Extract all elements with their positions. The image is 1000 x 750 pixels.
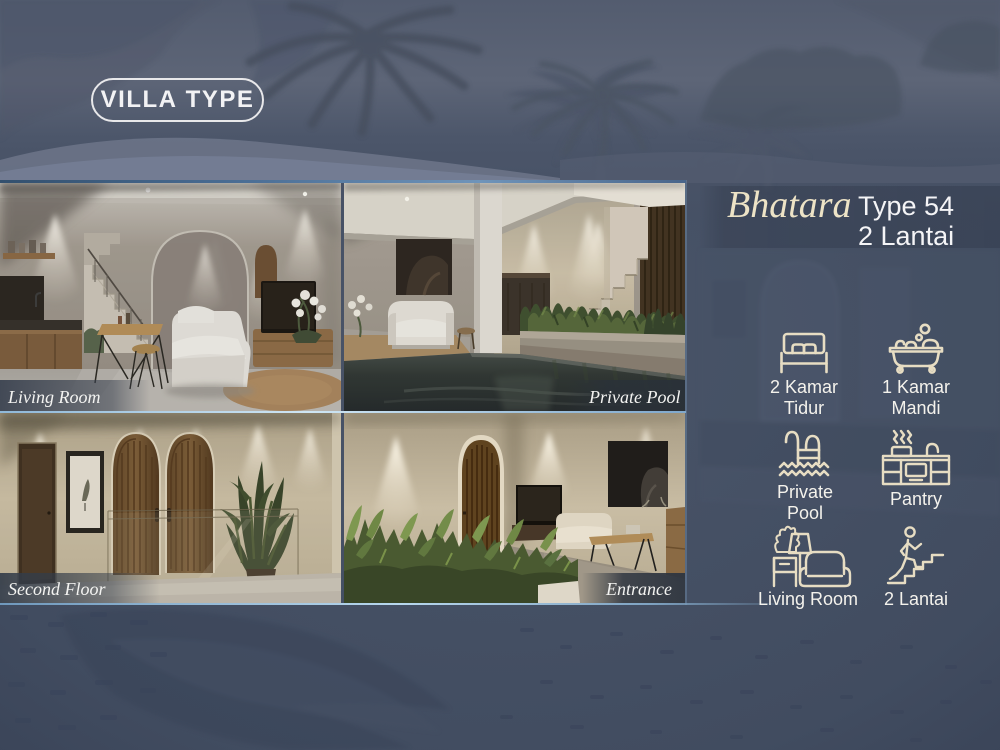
svg-text:2 Kamar: 2 Kamar	[770, 377, 838, 397]
svg-text:Mandi: Mandi	[891, 398, 940, 418]
svg-text:1 Kamar: 1 Kamar	[882, 377, 950, 397]
svg-text:Living Room: Living Room	[7, 387, 101, 407]
svg-text:Second Floor: Second Floor	[8, 579, 106, 599]
svg-text:Pool: Pool	[787, 503, 823, 523]
svg-text:Private: Private	[777, 482, 833, 502]
svg-text:Private Pool: Private Pool	[588, 387, 680, 407]
svg-text:2 Lantai: 2 Lantai	[884, 589, 948, 609]
svg-text:Pantry: Pantry	[890, 489, 942, 509]
svg-text:Entrance: Entrance	[605, 579, 672, 599]
svg-text:Living Room: Living Room	[758, 589, 858, 609]
svg-text:Tidur: Tidur	[784, 398, 824, 418]
